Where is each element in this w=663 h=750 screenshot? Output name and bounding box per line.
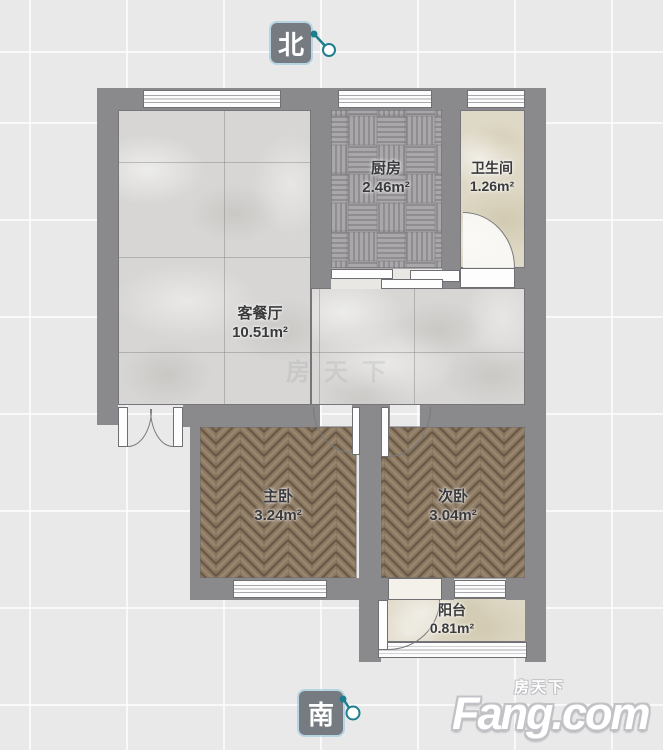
wall-kitchen-left [311, 110, 331, 288]
second-bedroom-door-leaf [381, 407, 389, 457]
kitchen-sliding-door-panel [381, 279, 443, 289]
window [233, 580, 327, 598]
compass-north-label: 北 [278, 25, 304, 62]
room-name: 卫生间 [452, 160, 532, 178]
room-label-living: 客餐厅 10.51m² [190, 305, 330, 343]
entry-door-swing-arc [128, 409, 152, 447]
entry-door-leaf [118, 407, 128, 447]
bathroom-door-threshold [460, 268, 515, 288]
tile-grid-line [414, 288, 415, 405]
compass-north-marker: 北 [271, 23, 311, 63]
room-area: 10.51m² [190, 324, 330, 343]
room-name: 次卧 [383, 488, 523, 507]
window [467, 90, 525, 108]
room-name: 阳台 [392, 602, 512, 620]
window [338, 90, 432, 108]
entry-door-leaf [173, 407, 183, 447]
window [454, 580, 506, 598]
room-label-bathroom: 卫生间 1.26m² [452, 160, 532, 195]
wall-bedroom2-bottom [506, 578, 546, 600]
wall-master-left [190, 425, 200, 598]
room-area: 1.26m² [452, 178, 532, 196]
master-door-swing-arc [313, 407, 352, 453]
room-name: 主卧 [208, 488, 348, 507]
room-area: 2.46m² [330, 179, 442, 198]
room-area: 3.04m² [383, 507, 523, 526]
compass-south-marker: 南 [299, 691, 343, 735]
compass-south-needle-icon [338, 692, 366, 724]
wall-kitchen-bathroom [442, 110, 460, 288]
room-name: 客餐厅 [190, 305, 330, 324]
room-name: 厨房 [330, 160, 442, 179]
second-bedroom-door-swing-arc [389, 407, 431, 457]
balcony-door-threshold [388, 578, 442, 600]
balcony-door-leaf [378, 600, 388, 650]
wall-bedroom2-bottom [442, 578, 454, 600]
wall-left [97, 88, 118, 425]
fang-logo-text: Fang.com [452, 688, 649, 740]
tile-grid-line [118, 162, 311, 163]
living-room-floor-right [311, 288, 525, 405]
wall-living-bottom [183, 405, 320, 427]
compass-north-needle-icon [308, 28, 338, 60]
center-watermark: 房天下 [238, 352, 448, 387]
window [143, 90, 281, 108]
room-label-balcony: 阳台 0.81m² [392, 602, 512, 637]
room-label-master: 主卧 3.24m² [208, 488, 348, 526]
room-label-second-bedroom: 次卧 3.04m² [383, 488, 523, 526]
tile-grid-line [118, 257, 311, 258]
master-door-leaf [352, 407, 360, 455]
fang-logo: 房天下 Fang.com [452, 676, 663, 748]
wall-bedroom2-bottom [356, 578, 390, 600]
entry-door-swing-arc [150, 409, 173, 447]
room-area: 3.24m² [208, 507, 348, 526]
wall-living-bottom [420, 405, 546, 427]
room-label-kitchen: 厨房 2.46m² [330, 160, 442, 198]
kitchen-sliding-door-panel [331, 269, 393, 279]
room-area: 0.81m² [392, 620, 512, 638]
compass-south-label: 南 [308, 695, 334, 732]
floorplan-image: 客餐厅 10.51m² 厨房 2.46m² 卫生间 1.26m² 主卧 3.24… [0, 0, 663, 750]
